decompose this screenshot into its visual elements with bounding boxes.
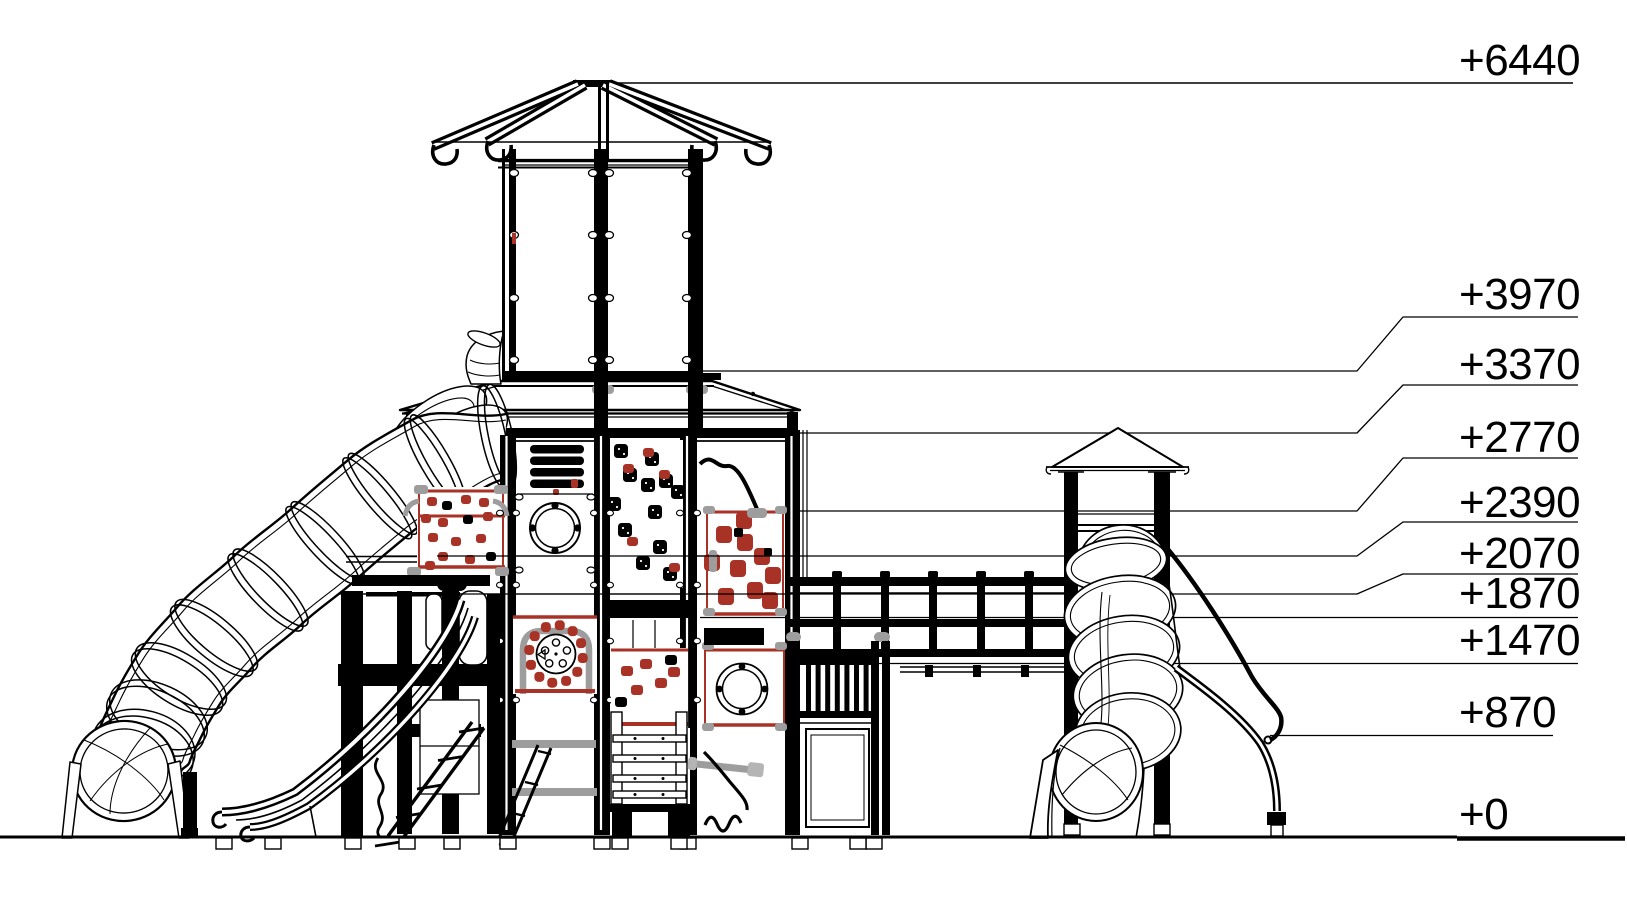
svg-text:+2770: +2770 [1459,413,1580,462]
svg-text:+870: +870 [1459,688,1556,737]
svg-text:+6440: +6440 [1459,36,1580,85]
svg-text:+3370: +3370 [1459,340,1580,389]
svg-text:+3970: +3970 [1459,270,1580,319]
svg-text:+2390: +2390 [1459,478,1580,527]
svg-text:+1470: +1470 [1459,616,1580,665]
svg-text:+1870: +1870 [1459,569,1580,618]
svg-text:+0: +0 [1459,790,1508,839]
